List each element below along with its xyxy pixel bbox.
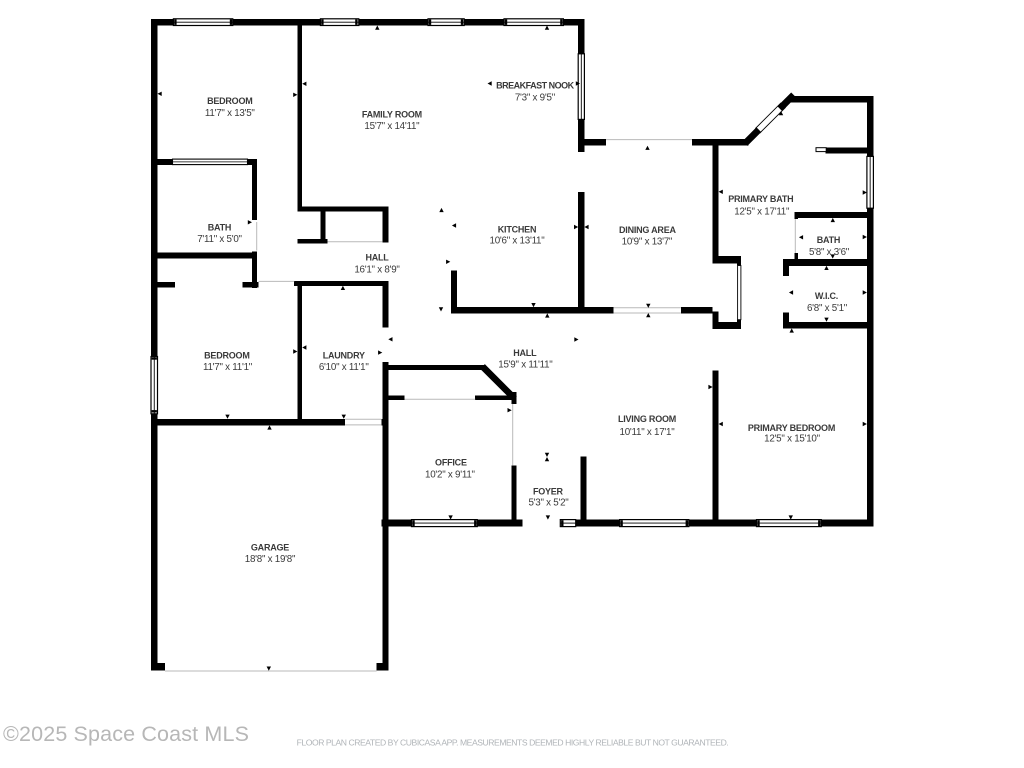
svg-text:18'8" x 19'8": 18'8" x 19'8": [245, 554, 296, 565]
svg-text:FLOOR PLAN CREATED BY CUBICASA: FLOOR PLAN CREATED BY CUBICASA APP. MEAS…: [297, 738, 729, 748]
svg-text:12'5" x 15'10": 12'5" x 15'10": [764, 433, 820, 444]
svg-text:15'9" x 11'11": 15'9" x 11'11": [498, 360, 553, 371]
svg-text:6'10" x 11'1": 6'10" x 11'1": [319, 362, 370, 373]
svg-text:LAUNDRY: LAUNDRY: [323, 351, 365, 361]
svg-text:12'5" x 17'11": 12'5" x 17'11": [734, 207, 790, 218]
svg-text:11'7" x 13'5": 11'7" x 13'5": [205, 108, 256, 119]
svg-text:BEDROOM: BEDROOM: [204, 351, 249, 361]
svg-text:10'2" x 9'11": 10'2" x 9'11": [425, 470, 476, 481]
svg-text:5'8" x 3'6": 5'8" x 3'6": [809, 247, 850, 258]
svg-text:BATH: BATH: [817, 235, 840, 245]
svg-text:FAMILY ROOM: FAMILY ROOM: [362, 110, 422, 120]
svg-text:KITCHEN: KITCHEN: [498, 224, 536, 234]
svg-text:BATH: BATH: [208, 223, 231, 233]
svg-text:W.I.C.: W.I.C.: [815, 291, 838, 301]
svg-text:15'7" x 14'11": 15'7" x 14'11": [364, 121, 420, 132]
svg-text:HALL: HALL: [365, 253, 389, 263]
svg-text:10'11" x 17'1": 10'11" x 17'1": [620, 427, 676, 438]
svg-text:11'7" x 11'1": 11'7" x 11'1": [203, 362, 253, 373]
svg-text:10'6" x 13'11": 10'6" x 13'11": [490, 236, 546, 247]
svg-text:FOYER: FOYER: [533, 487, 564, 497]
svg-text:©2025 Space Coast MLS: ©2025 Space Coast MLS: [3, 722, 249, 746]
svg-text:DINING AREA: DINING AREA: [619, 225, 676, 235]
svg-text:7'11" x 5'0": 7'11" x 5'0": [197, 234, 242, 245]
svg-text:BEDROOM: BEDROOM: [207, 96, 252, 106]
svg-text:PRIMARY BEDROOM: PRIMARY BEDROOM: [748, 423, 835, 433]
svg-text:7'3" x 9'5": 7'3" x 9'5": [515, 93, 556, 104]
svg-text:OFFICE: OFFICE: [435, 458, 467, 468]
svg-text:BREAKFAST NOOK: BREAKFAST NOOK: [496, 80, 575, 90]
svg-text:16'1" x 8'9": 16'1" x 8'9": [354, 265, 400, 276]
svg-text:LIVING ROOM: LIVING ROOM: [618, 414, 676, 424]
svg-text:10'9" x 13'7": 10'9" x 13'7": [622, 237, 673, 248]
svg-text:PRIMARY BATH: PRIMARY BATH: [728, 194, 793, 204]
svg-text:GARAGE: GARAGE: [251, 543, 289, 553]
svg-text:6'8" x 5'1": 6'8" x 5'1": [807, 303, 848, 314]
svg-text:5'3" x 5'2": 5'3" x 5'2": [528, 498, 569, 509]
svg-text:HALL: HALL: [513, 348, 537, 358]
